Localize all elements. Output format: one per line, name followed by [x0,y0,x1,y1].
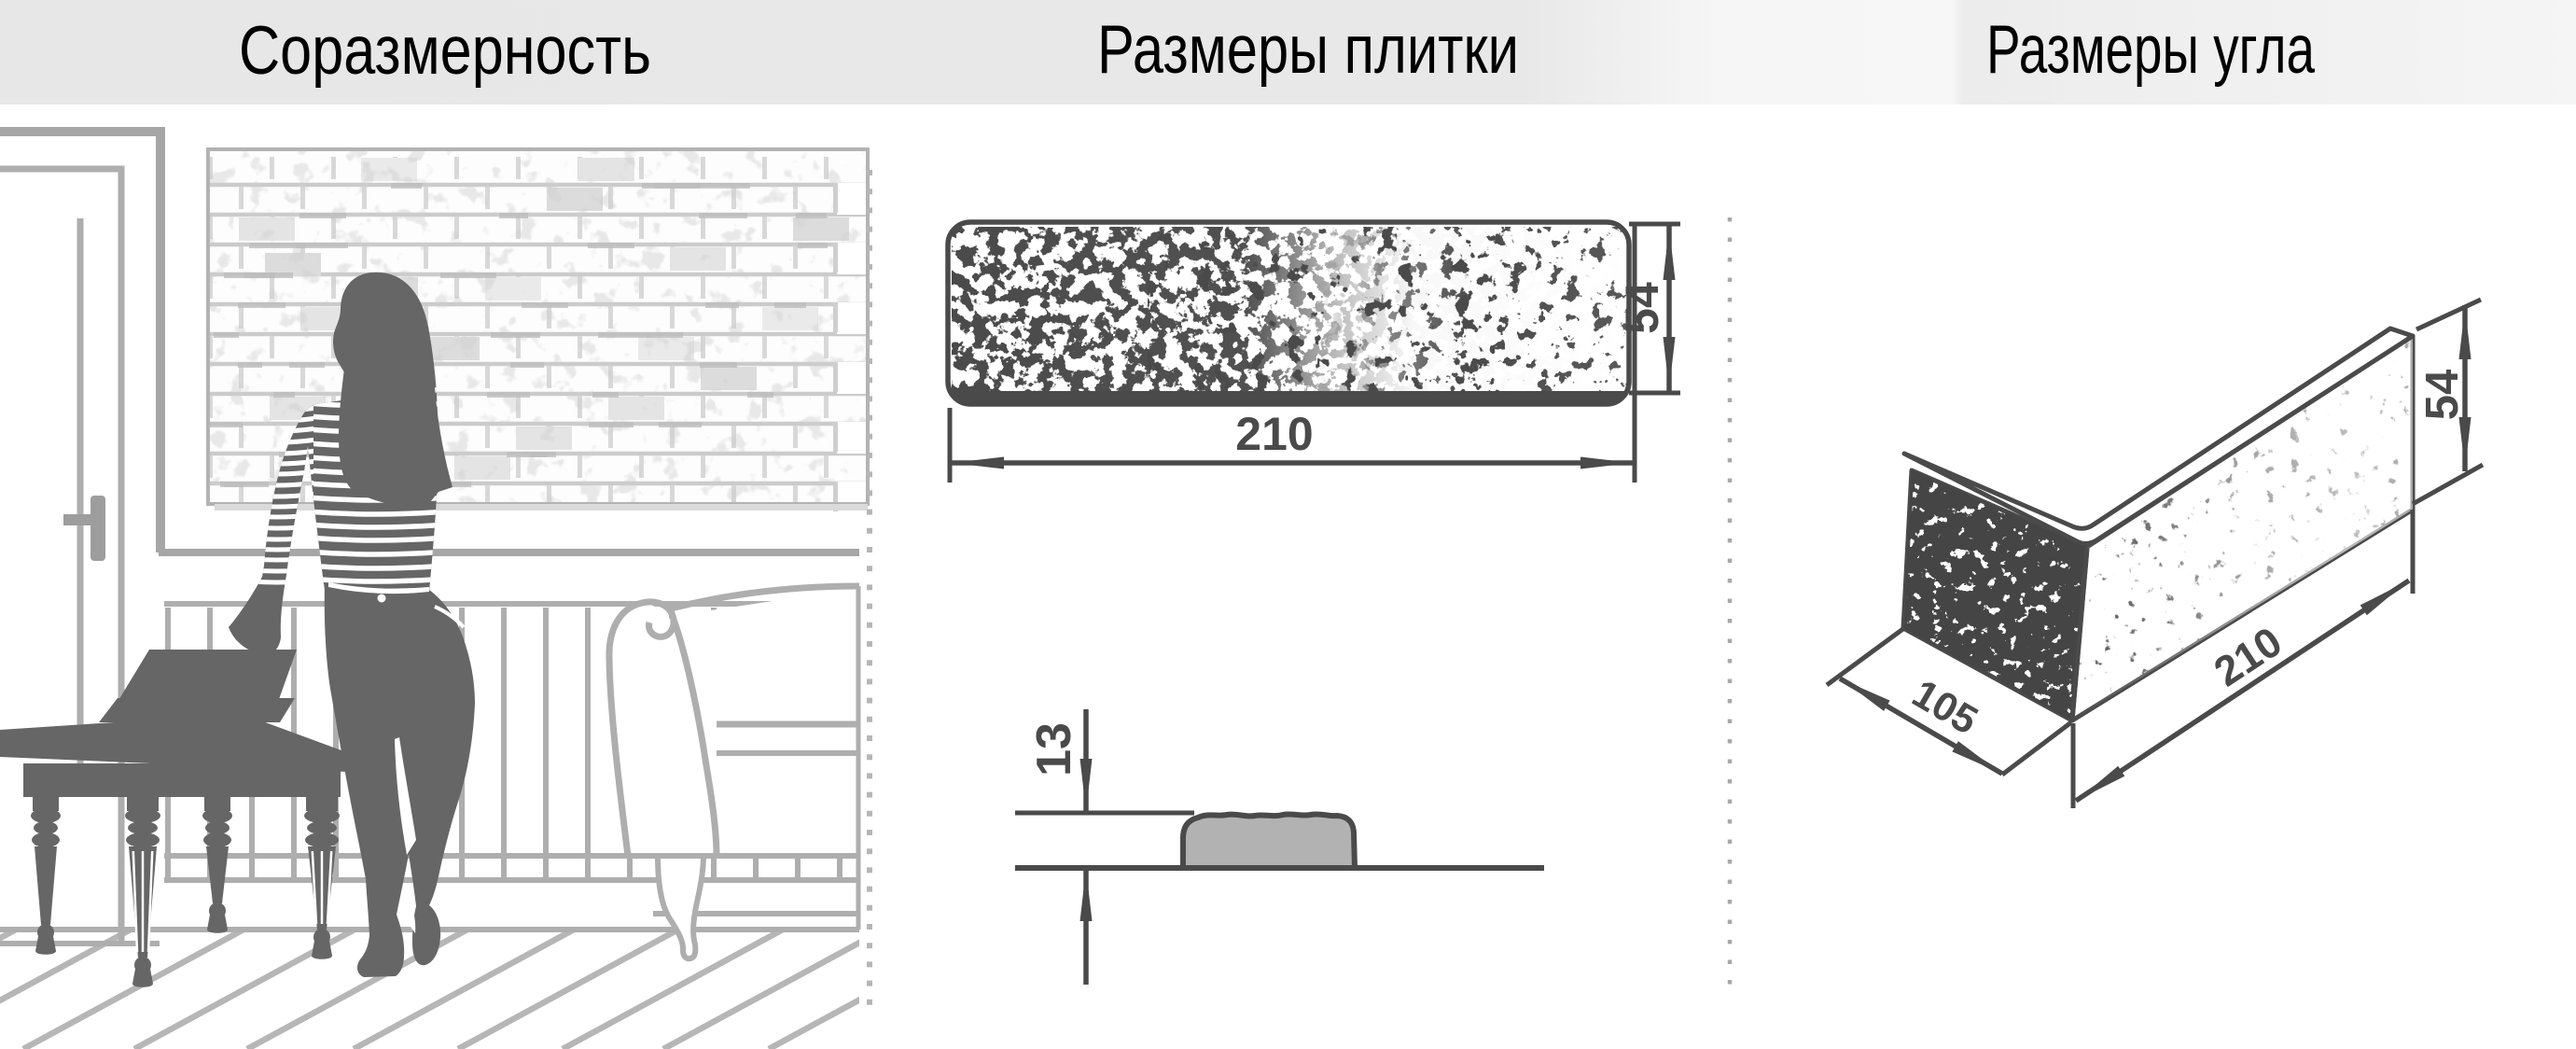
svg-text:13: 13 [1027,722,1081,776]
svg-text:Размеры угла: Размеры угла [1986,12,2315,88]
svg-text:210: 210 [1235,408,1313,460]
svg-text:Размеры плитки: Размеры плитки [1097,12,1519,88]
svg-text:54: 54 [1616,282,1668,334]
svg-text:54: 54 [2417,370,2468,421]
svg-text:Соразмерность: Соразмерность [239,13,651,89]
